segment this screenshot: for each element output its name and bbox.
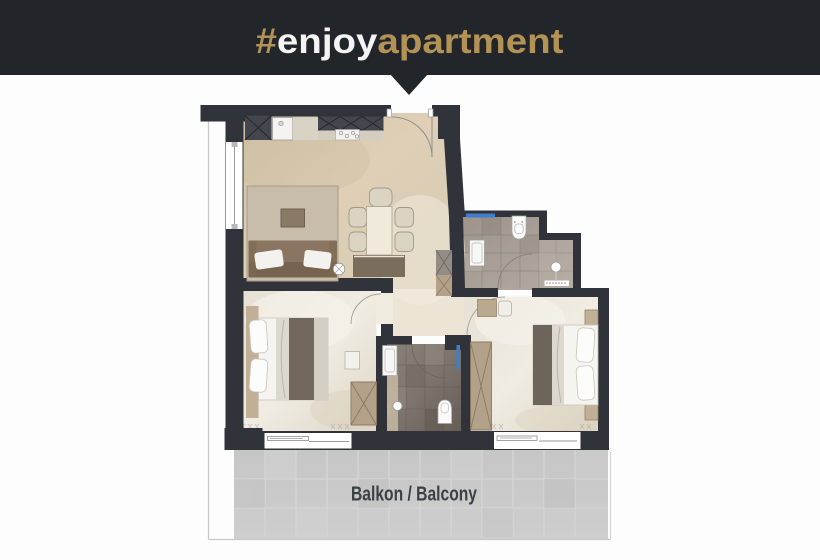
svg-text:Balkon / Balcony: Balkon / Balcony <box>351 484 478 506</box>
svg-text:#enjoyapartment: #enjoyapartment <box>256 22 564 61</box>
